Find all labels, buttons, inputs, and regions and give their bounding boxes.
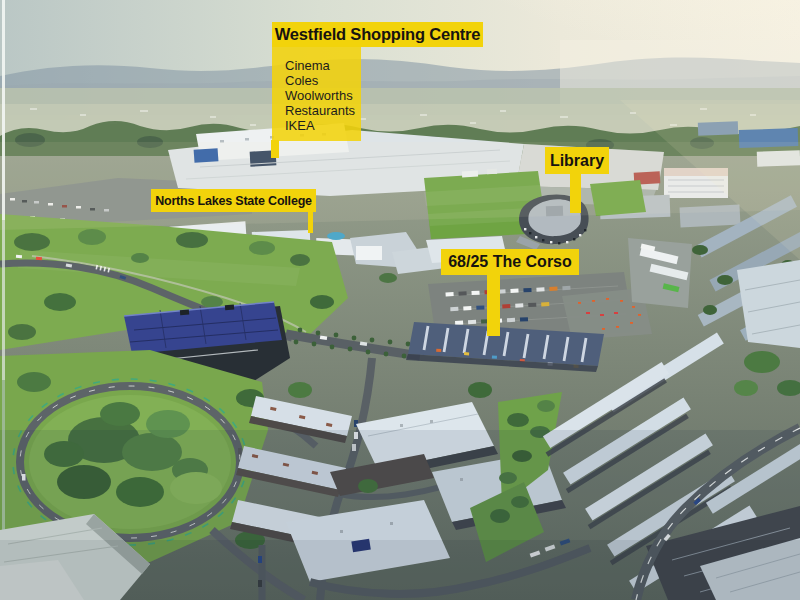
callout-library: Library (545, 147, 609, 174)
annotated-aerial-photo: Westfield Shopping Centre Cinema Coles W… (0, 0, 800, 600)
callout-property-leader (487, 275, 500, 336)
callout-library-leader (570, 173, 581, 213)
list-item-restaurants: Restaurants (285, 103, 361, 118)
list-item-coles: Coles (285, 73, 361, 88)
callout-college: Norths Lakes State College (151, 189, 316, 212)
list-item-woolworths: Woolworths (285, 88, 361, 103)
aerial-photo-image (0, 0, 800, 600)
callout-westfield-leader (271, 140, 279, 158)
list-item-cinema: Cinema (285, 58, 361, 73)
list-item-ikea: IKEA (285, 118, 361, 133)
callout-westfield-list: Cinema Coles Woolworths Restaurants IKEA (272, 47, 361, 141)
callout-westfield-title: Westfield Shopping Centre (272, 22, 483, 47)
callout-property: 68/25 The Corso (441, 249, 579, 275)
callout-college-leader (308, 211, 313, 233)
